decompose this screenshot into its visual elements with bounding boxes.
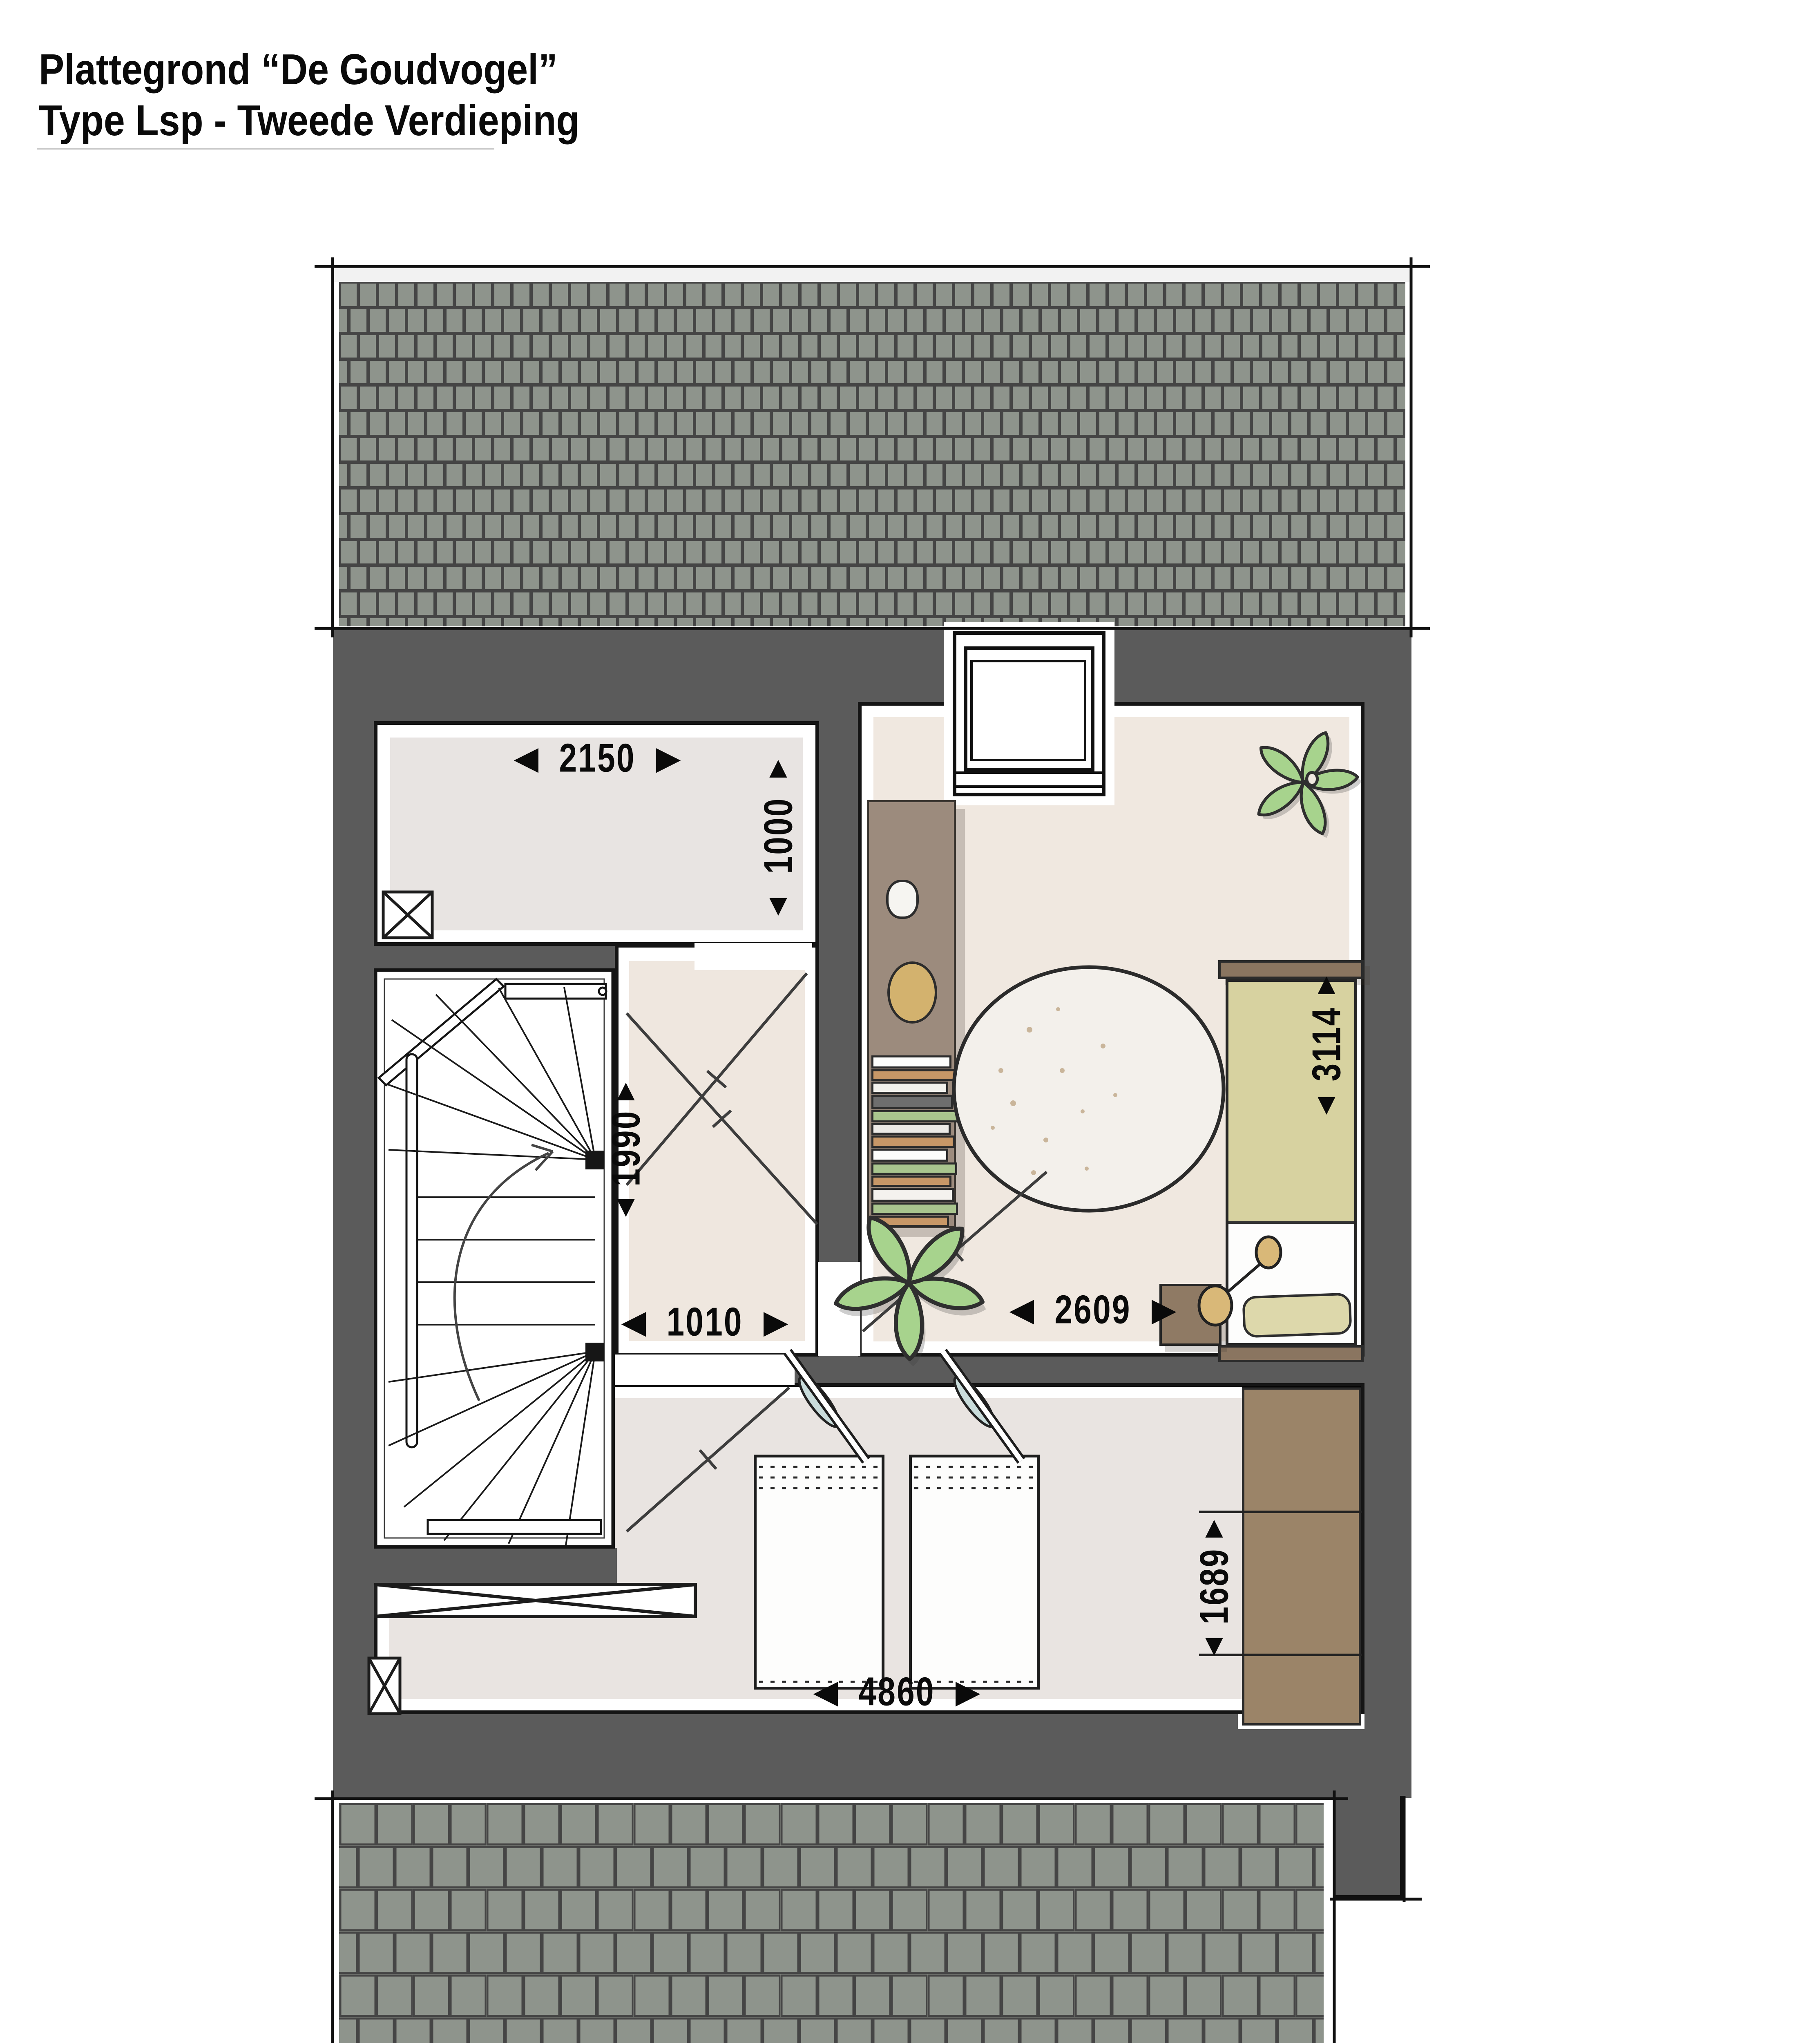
dim-arrow-left: ◀ xyxy=(1010,1294,1034,1325)
dim-arrow-right: ▶ xyxy=(1152,1294,1175,1325)
dim-arrow-up: ▲ xyxy=(1199,1512,1229,1542)
dim-arrow-up: ▲ xyxy=(1311,969,1341,999)
roof-window-pole-icon xyxy=(788,1352,1021,1461)
roof-outline-lines xyxy=(319,257,1426,2043)
dim-arrow-down: ▼ xyxy=(1311,1089,1341,1119)
dim-bedroom-depth: 3114 xyxy=(1304,1007,1350,1082)
knee-wall-crossbox-icon xyxy=(376,1585,695,1616)
dim-arrow-down: ▼ xyxy=(763,890,793,920)
dim-bottom-room-width: ◀ 4860 ▶ xyxy=(814,1669,979,1715)
plan-linework xyxy=(0,0,1820,2043)
tick-marks xyxy=(315,266,1430,2043)
dim-hall-depth: 1990 xyxy=(603,1110,649,1186)
dim-arrow-left: ◀ xyxy=(814,1676,837,1707)
dim-arrow-right: ▶ xyxy=(657,743,680,773)
dim-bedroom-width: ◀ 2609 ▶ xyxy=(1010,1287,1175,1333)
dim-arrow-up: ▲ xyxy=(763,752,793,782)
roof-window-stitching xyxy=(759,1467,1034,1682)
dim-hall-width: ◀ 1010 ▶ xyxy=(622,1299,787,1345)
dim-arrow-down: ▼ xyxy=(1199,1630,1229,1660)
dim-arrow-left: ◀ xyxy=(515,743,538,773)
lamp-icon xyxy=(1199,1237,1281,1325)
dim-top-room-width: ◀ 2150 ▶ xyxy=(515,735,680,781)
floorplan-page: Plattegrond “De Goudvogel” Type Lsp - Tw… xyxy=(0,0,1820,2043)
dim-arrow-down: ▼ xyxy=(611,1191,641,1221)
door-swing-line xyxy=(627,973,1047,1531)
dim-arrow-right: ▶ xyxy=(764,1307,787,1337)
dim-arrow-right: ▶ xyxy=(956,1676,979,1707)
dim-arrow-left: ◀ xyxy=(622,1307,645,1337)
dim-closet-depth: 1689 xyxy=(1191,1548,1237,1624)
dim-arrow-up: ▲ xyxy=(611,1075,641,1105)
dim-top-room-depth: 1000 xyxy=(755,797,802,874)
